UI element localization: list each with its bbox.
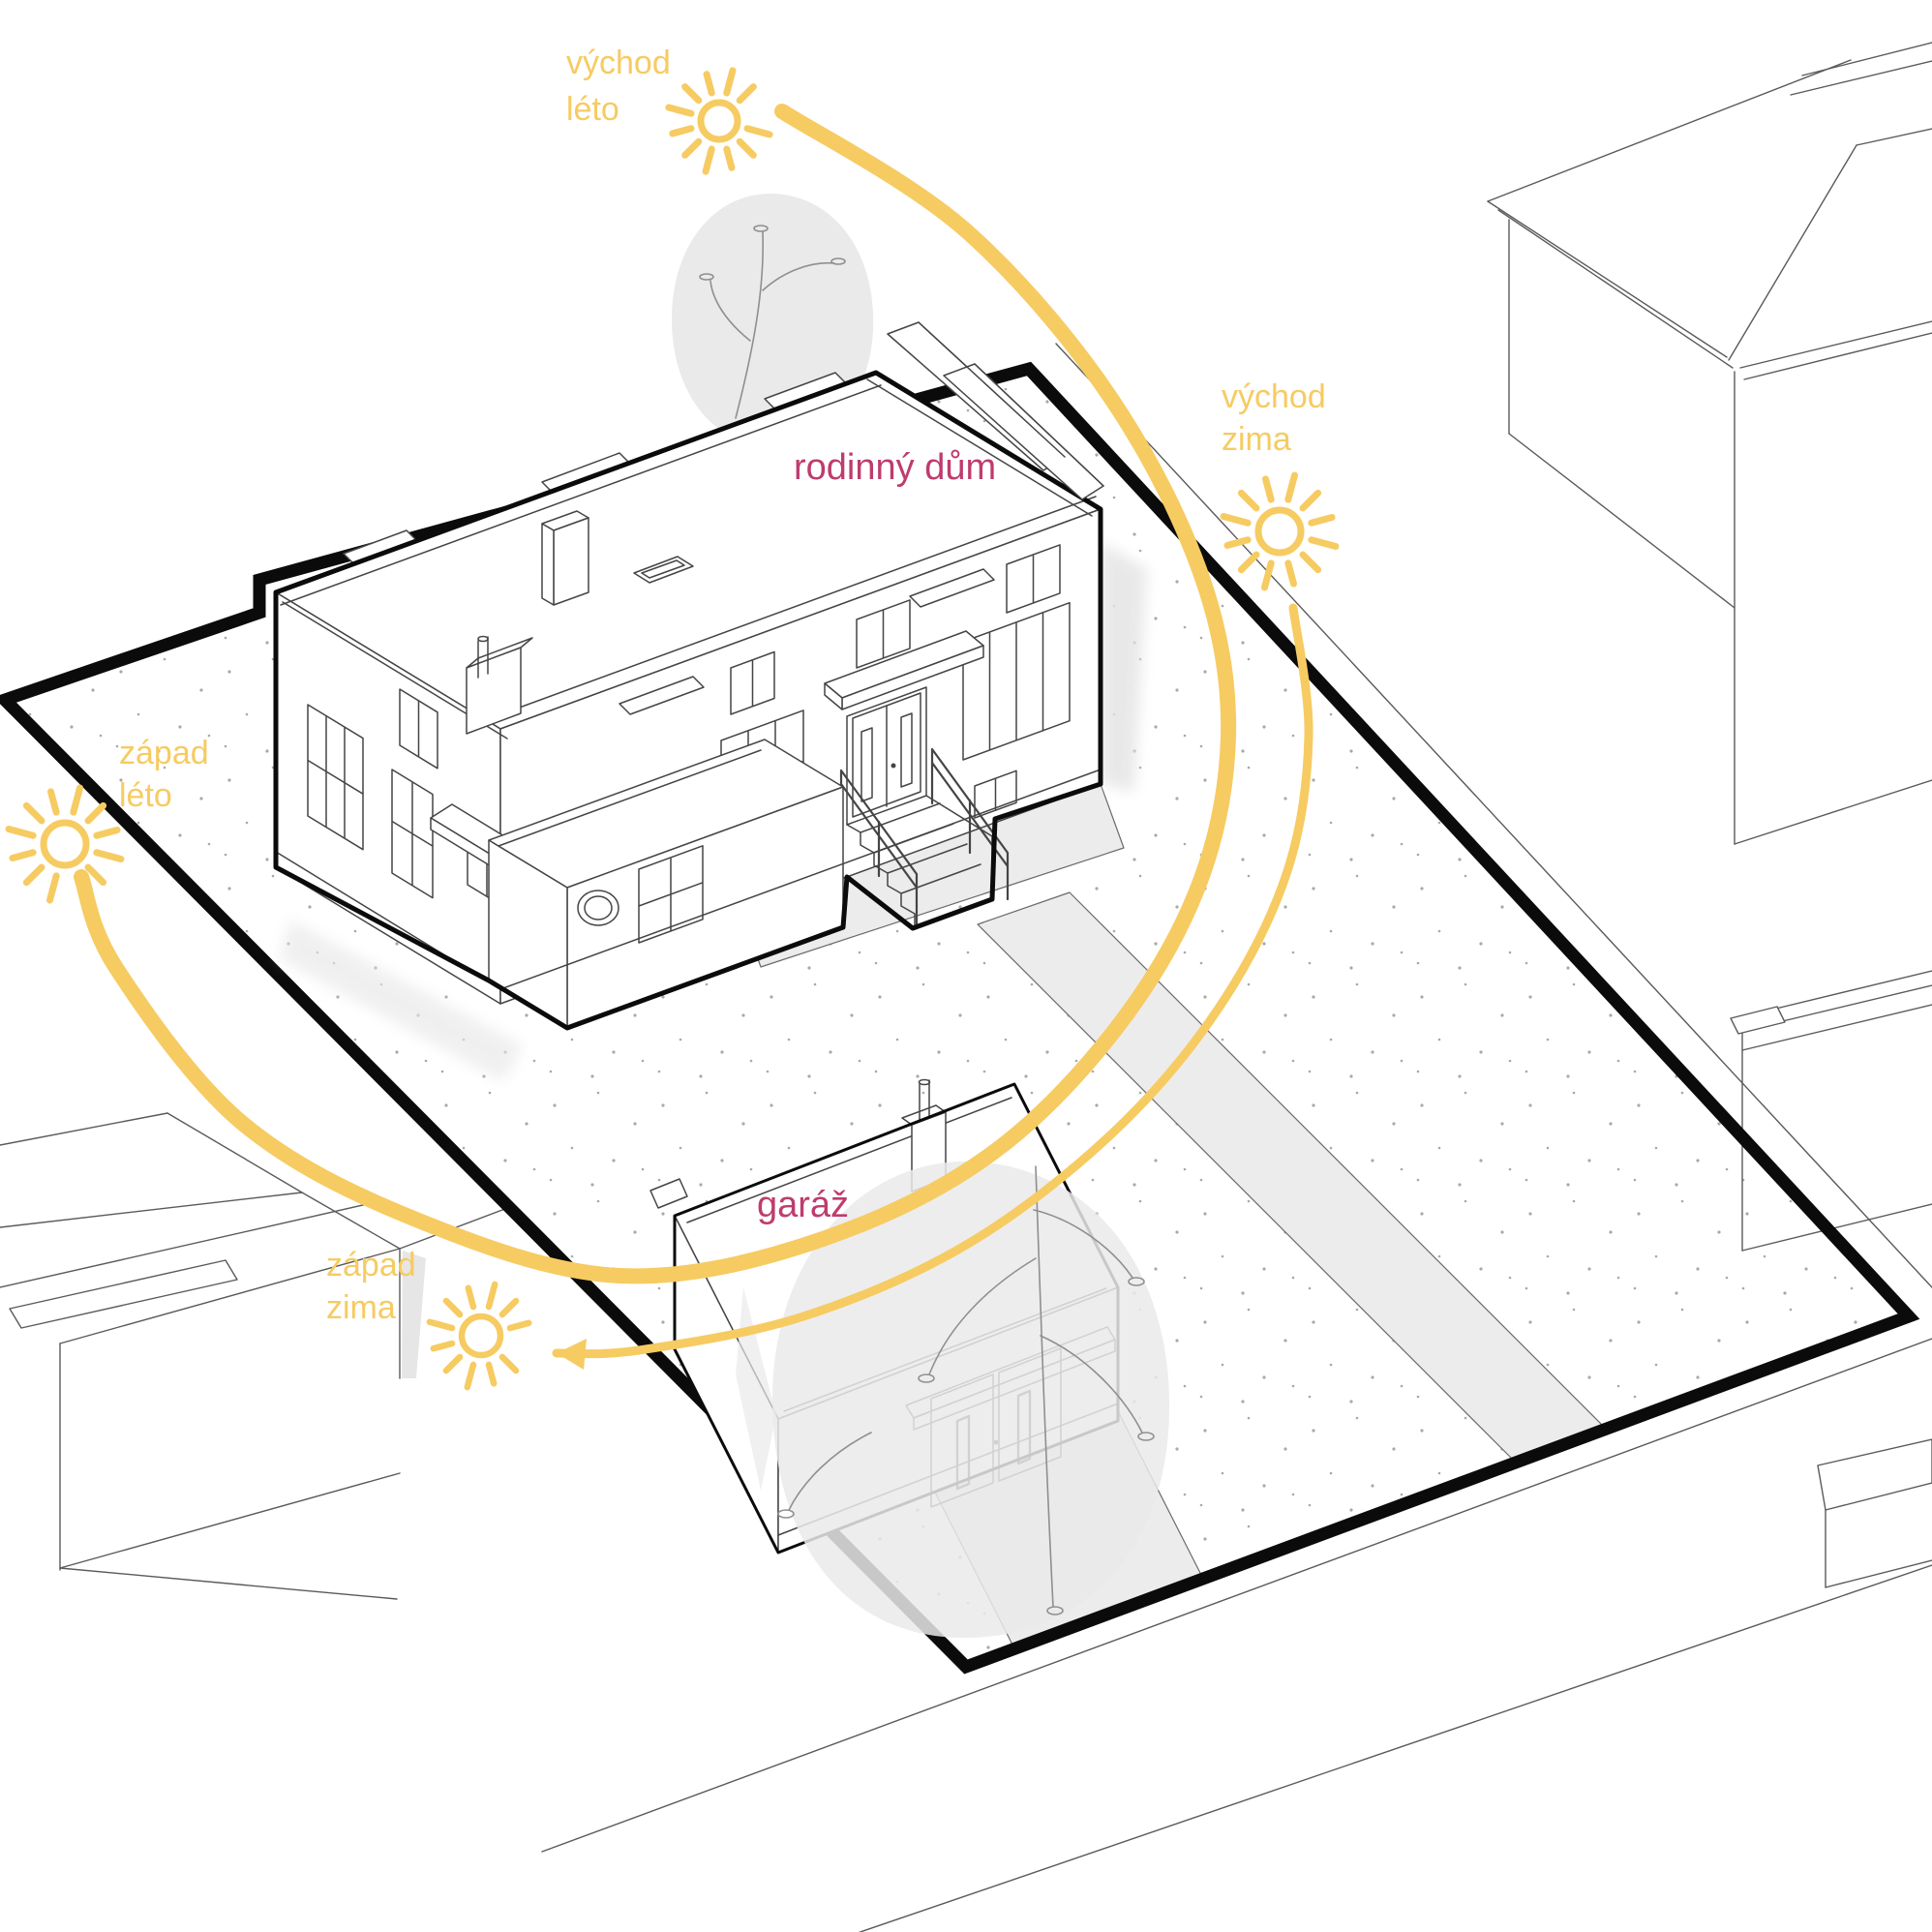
label-house: rodinný dům xyxy=(794,447,996,488)
site-plan-svg: východ léto východ zima západ léto západ… xyxy=(0,0,1932,1932)
label-west-winter-line2: zima xyxy=(326,1289,396,1326)
sun-west-winter-icon xyxy=(430,1284,528,1387)
label-west-summer-line2: léto xyxy=(119,777,172,814)
label-west-summer-line1: západ xyxy=(119,735,209,771)
sun-east-winter-icon xyxy=(1223,475,1336,588)
label-east-summer-line1: východ xyxy=(566,45,671,81)
label-east-winter-line2: zima xyxy=(1222,421,1291,458)
label-east-winter-line1: východ xyxy=(1222,378,1326,415)
neighbor-house-northeast xyxy=(1488,43,1932,844)
label-east-summer-line2: léto xyxy=(566,91,619,128)
winter-arc-arrowhead xyxy=(557,1339,587,1370)
label-garage: garáž xyxy=(757,1185,849,1225)
site-diagram: východ léto východ zima západ léto západ… xyxy=(0,0,1932,1932)
neighbor-slab-southeast xyxy=(1818,1439,1932,1587)
neighbor-house-southwest xyxy=(0,1113,510,1599)
sun-west-summer-icon xyxy=(9,788,121,900)
chimney-large xyxy=(542,511,589,605)
sun-east-summer-icon xyxy=(669,71,770,171)
label-west-winter-line1: západ xyxy=(326,1247,416,1283)
